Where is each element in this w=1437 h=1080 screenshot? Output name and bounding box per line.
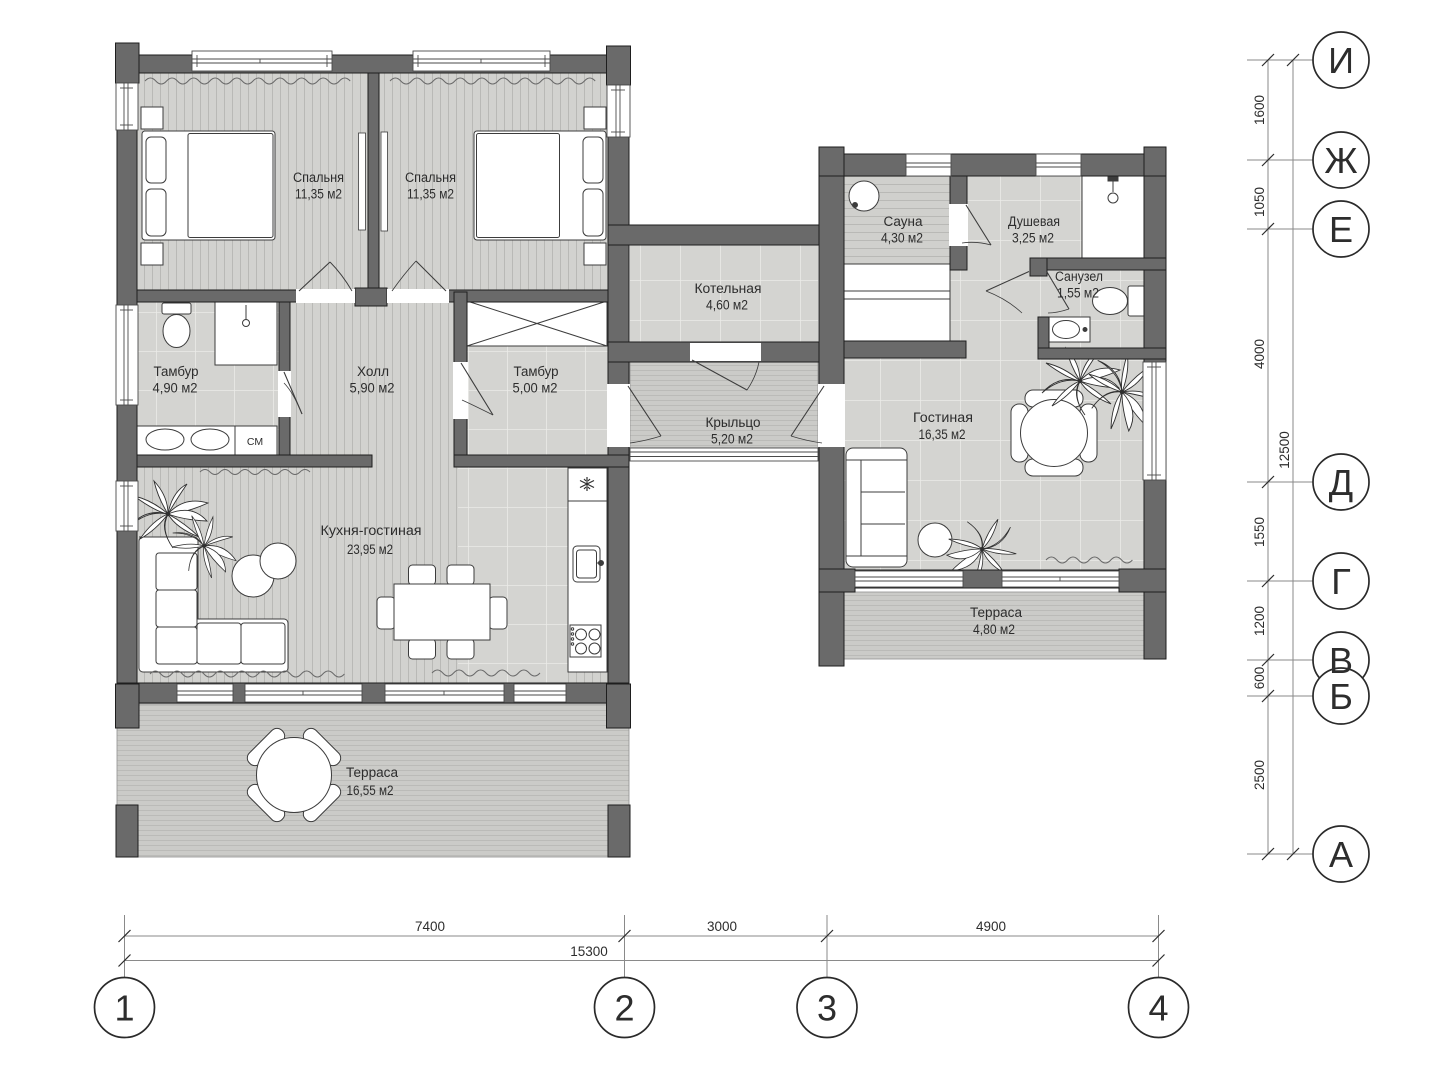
svg-text:16,55 м2: 16,55 м2 — [347, 783, 394, 799]
svg-text:Спальня: Спальня — [405, 170, 456, 186]
svg-text:5,00 м2: 5,00 м2 — [513, 381, 558, 397]
svg-text:Терраса: Терраса — [970, 605, 1022, 621]
svg-text:Кухня-гостиная: Кухня-гостиная — [321, 523, 422, 539]
svg-text:4900: 4900 — [976, 919, 1006, 934]
svg-text:Тамбур: Тамбур — [154, 364, 199, 380]
svg-text:Д: Д — [1329, 462, 1353, 503]
svg-text:23,95 м2: 23,95 м2 — [347, 542, 393, 558]
svg-text:4,30 м2: 4,30 м2 — [881, 231, 923, 247]
svg-text:В: В — [1329, 640, 1353, 681]
svg-text:3,25 м2: 3,25 м2 — [1012, 231, 1054, 247]
svg-text:2: 2 — [614, 988, 634, 1029]
svg-text:1200: 1200 — [1252, 606, 1267, 636]
svg-text:Терраса: Терраса — [346, 765, 398, 781]
svg-text:4,80 м2: 4,80 м2 — [973, 622, 1015, 638]
svg-text:Е: Е — [1329, 209, 1353, 250]
svg-text:СМ: СМ — [247, 436, 263, 448]
svg-text:Спальня: Спальня — [293, 170, 344, 186]
svg-text:Ж: Ж — [1324, 140, 1357, 181]
svg-text:5,20 м2: 5,20 м2 — [711, 432, 753, 448]
svg-text:2500: 2500 — [1252, 760, 1267, 790]
svg-text:Душевая: Душевая — [1008, 214, 1060, 230]
svg-text:3000: 3000 — [707, 919, 737, 934]
svg-text:Холл: Холл — [357, 364, 389, 380]
svg-text:4,90 м2: 4,90 м2 — [153, 381, 198, 397]
svg-text:И: И — [1328, 40, 1354, 81]
svg-text:4: 4 — [1148, 988, 1168, 1029]
svg-text:1: 1 — [114, 988, 134, 1029]
svg-text:Г: Г — [1331, 561, 1351, 602]
svg-text:1600: 1600 — [1252, 95, 1267, 125]
svg-text:Тамбур: Тамбур — [514, 364, 559, 380]
svg-text:1050: 1050 — [1252, 187, 1267, 217]
svg-text:Гостиная: Гостиная — [913, 410, 973, 426]
svg-text:11,35 м2: 11,35 м2 — [407, 187, 454, 203]
svg-text:15300: 15300 — [570, 944, 608, 959]
svg-text:3: 3 — [817, 988, 837, 1029]
svg-text:5,90 м2: 5,90 м2 — [350, 381, 395, 397]
svg-text:Котельная: Котельная — [695, 281, 762, 297]
svg-text:1550: 1550 — [1252, 517, 1267, 547]
svg-text:Крыльцо: Крыльцо — [706, 415, 761, 431]
svg-text:Б: Б — [1329, 676, 1353, 717]
svg-text:4,60 м2: 4,60 м2 — [706, 298, 748, 314]
svg-text:4000: 4000 — [1252, 339, 1267, 369]
svg-text:12500: 12500 — [1277, 431, 1292, 469]
svg-text:Санузел: Санузел — [1055, 269, 1103, 285]
svg-text:600: 600 — [1252, 667, 1267, 690]
svg-text:1,55 м2: 1,55 м2 — [1057, 286, 1099, 302]
svg-text:11,35 м2: 11,35 м2 — [295, 187, 342, 203]
svg-text:Сауна: Сауна — [884, 214, 923, 230]
svg-text:16,35 м2: 16,35 м2 — [919, 427, 966, 443]
svg-text:7400: 7400 — [415, 919, 445, 934]
svg-text:А: А — [1329, 834, 1353, 875]
